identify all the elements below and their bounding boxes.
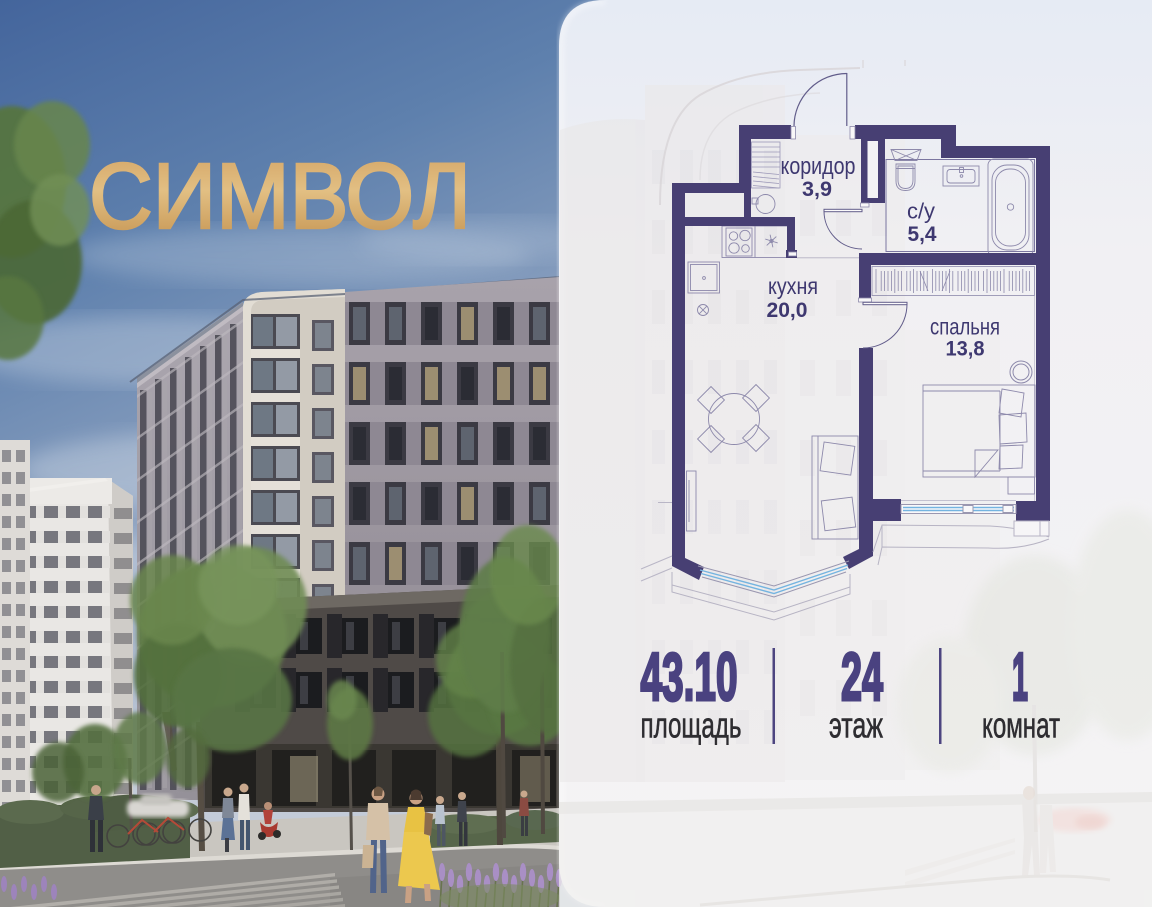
svg-text:с/у: с/у bbox=[907, 199, 935, 224]
svg-text:20,0: 20,0 bbox=[767, 299, 808, 322]
svg-text:3,9: 3,9 bbox=[802, 178, 832, 201]
svg-text:площадь: площадь bbox=[641, 705, 742, 746]
svg-text:кухня: кухня bbox=[768, 273, 818, 299]
svg-text:спальня: спальня bbox=[930, 314, 1000, 340]
svg-text:комнат: комнат bbox=[982, 705, 1060, 746]
svg-text:коридор: коридор bbox=[781, 153, 856, 180]
svg-text:этаж: этаж bbox=[829, 705, 883, 746]
svg-text:13,8: 13,8 bbox=[946, 338, 985, 361]
svg-text:СИМВОЛ: СИМВОЛ bbox=[89, 144, 471, 248]
svg-text:5,4: 5,4 bbox=[908, 223, 937, 246]
